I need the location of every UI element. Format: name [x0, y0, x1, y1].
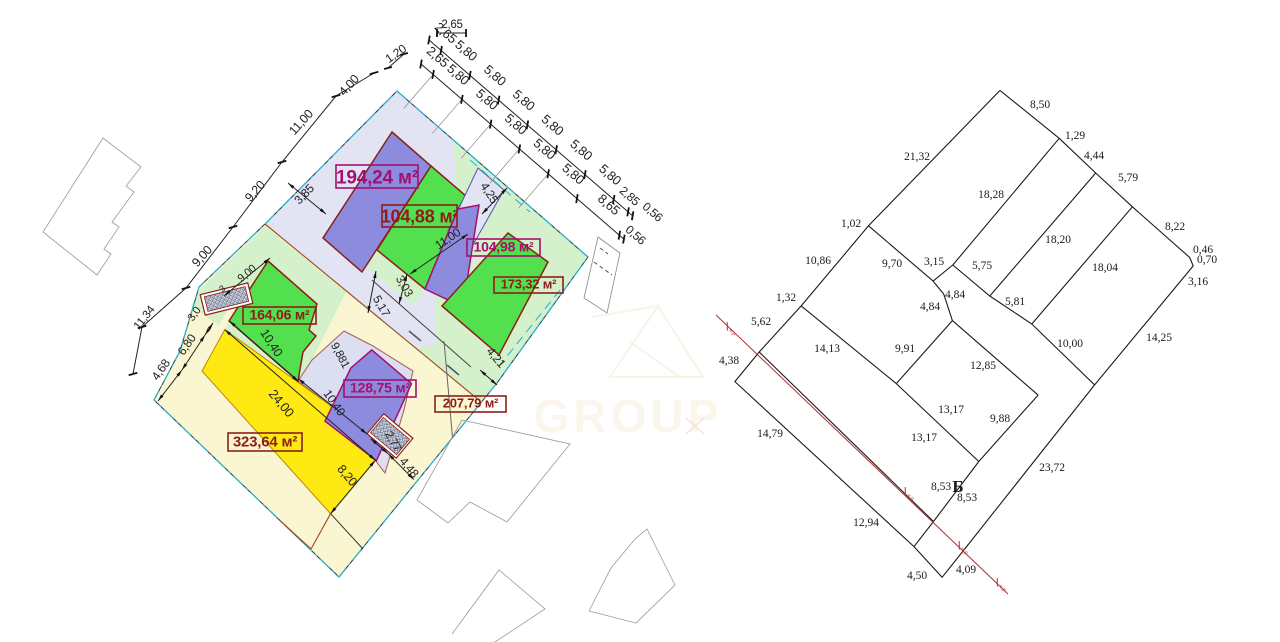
svg-text:104,88 м²: 104,88 м²: [381, 207, 459, 227]
svg-text:4,84: 4,84: [945, 289, 965, 301]
svg-text:5,62: 5,62: [751, 316, 771, 328]
svg-text:12,94: 12,94: [853, 517, 879, 529]
svg-text:23,72: 23,72: [1039, 462, 1065, 474]
svg-text:323,64 м²: 323,64 м²: [233, 434, 298, 451]
svg-text:4,50: 4,50: [907, 570, 927, 582]
svg-text:8,53: 8,53: [931, 481, 951, 493]
svg-text:207,79 м²: 207,79 м²: [443, 396, 499, 411]
svg-text:2,65: 2,65: [441, 19, 462, 31]
svg-text:104,98 м²: 104,98 м²: [474, 239, 534, 255]
svg-text:18,04: 18,04: [1092, 262, 1118, 274]
svg-text:4,84: 4,84: [920, 301, 940, 313]
svg-text:5,79: 5,79: [1118, 172, 1138, 184]
svg-text:194,24 м²: 194,24 м²: [336, 168, 418, 189]
svg-text:9,70: 9,70: [882, 258, 902, 270]
svg-text:14,25: 14,25: [1146, 332, 1172, 344]
svg-text:18,20: 18,20: [1045, 234, 1071, 246]
svg-text:4,09: 4,09: [956, 564, 976, 576]
svg-text:21,32: 21,32: [904, 151, 930, 163]
svg-text:164,06 м²: 164,06 м²: [250, 307, 310, 323]
svg-text:14,79: 14,79: [757, 428, 783, 440]
svg-text:4,44: 4,44: [1084, 150, 1104, 162]
svg-text:1,29: 1,29: [1065, 130, 1085, 142]
svg-text:5,81: 5,81: [1005, 296, 1025, 308]
svg-text:14,13: 14,13: [814, 343, 840, 355]
svg-text:Б: Б: [952, 477, 963, 496]
svg-text:8,22: 8,22: [1165, 221, 1185, 233]
svg-text:13,17: 13,17: [938, 404, 964, 416]
svg-text:4,38: 4,38: [719, 355, 739, 367]
svg-text:173,32 м²: 173,32 м²: [501, 277, 557, 292]
svg-text:10,00: 10,00: [1057, 338, 1083, 350]
svg-text:5,75: 5,75: [972, 260, 992, 272]
svg-text:1,02: 1,02: [841, 218, 861, 230]
svg-text:18,28: 18,28: [978, 189, 1004, 201]
svg-text:9,91: 9,91: [895, 343, 915, 355]
svg-text:1,32: 1,32: [776, 292, 796, 304]
svg-text:13,17: 13,17: [911, 432, 937, 444]
svg-text:GROUP: GROUP: [534, 390, 723, 442]
svg-text:128,75 м²: 128,75 м²: [350, 380, 410, 396]
svg-text:3,15: 3,15: [924, 256, 944, 268]
svg-text:9,88: 9,88: [990, 413, 1010, 425]
svg-text:12,85: 12,85: [970, 360, 996, 372]
svg-text:0,70: 0,70: [1197, 254, 1217, 266]
svg-text:8,50: 8,50: [1030, 99, 1050, 111]
svg-text:3,16: 3,16: [1188, 276, 1208, 288]
svg-text:10,86: 10,86: [805, 255, 831, 267]
